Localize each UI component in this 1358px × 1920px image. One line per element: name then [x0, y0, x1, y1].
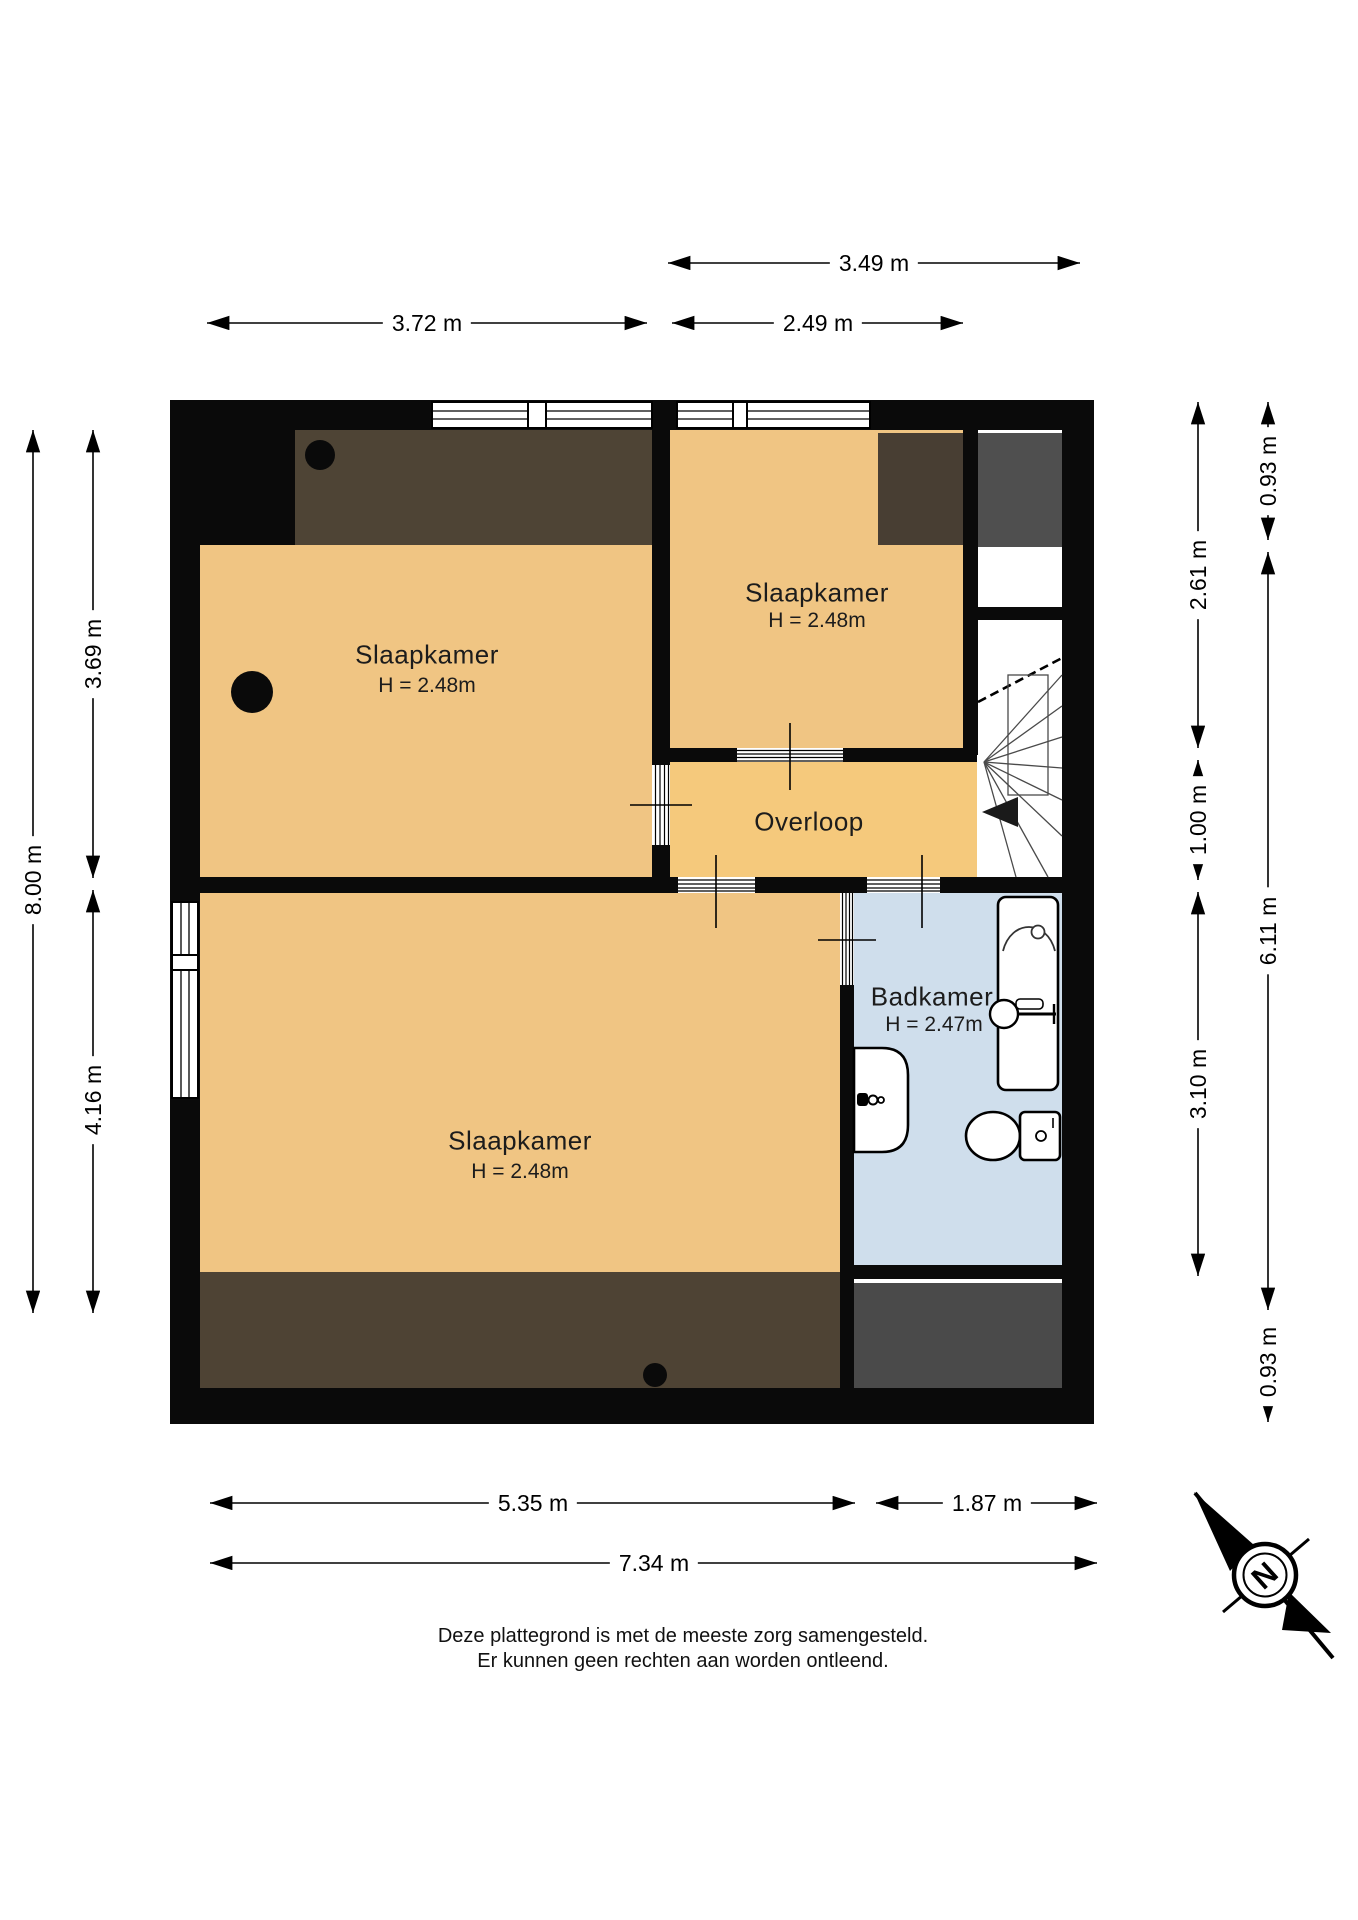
disclaimer-line-2: Er kunnen geen rechten aan worden ontlee… [477, 1650, 888, 1673]
dimension-label: 8.00 m [20, 836, 46, 924]
washbasin [854, 1048, 908, 1152]
dimension-label: 4.16 m [80, 1056, 106, 1144]
wall-stairwell-closet [978, 607, 1062, 620]
room-label-slaapkamer-top-right: Slaapkamer [745, 578, 889, 609]
sloped-zone-bottom-right [854, 1283, 1062, 1388]
room-label-slaapkamer-top-left: Slaapkamer [355, 640, 499, 671]
wall-exterior-bottom [170, 1388, 1094, 1424]
dimension-label: 3.72 m [383, 310, 471, 336]
wall-stairwell-left [963, 430, 978, 755]
wall-bathroom-bottom [854, 1265, 1062, 1279]
sloped-zone-top-right [878, 433, 963, 545]
dimension-label: 3.49 m [830, 250, 918, 276]
wall-exterior-right [1062, 400, 1094, 1424]
room-height-slaapkamer-top-right: H = 2.48m [768, 609, 865, 633]
wall-corner-block [170, 400, 295, 545]
toilet [966, 1112, 1060, 1160]
sloped-zone-bottom-left [200, 1272, 840, 1388]
dimension-label: 3.69 m [80, 610, 106, 698]
ceiling-spot-icon [643, 1363, 667, 1387]
dimension-label: 2.61 m [1185, 531, 1211, 619]
ceiling-spot-icon [231, 671, 273, 713]
room-height-slaapkamer-top-left: H = 2.48m [378, 674, 475, 698]
floor-areas [200, 430, 1062, 1388]
floorplan-canvas: Slaapkamer H = 2.48m Slaapkamer H = 2.48… [0, 0, 1358, 1920]
dimension-label: 2.49 m [774, 310, 862, 336]
window-top-left [432, 402, 652, 428]
bathtub [998, 897, 1058, 1090]
dimension-label: 0.93 m [1255, 1318, 1281, 1406]
ceiling-spot-icon [305, 440, 335, 470]
room-label-badkamer: Badkamer [871, 982, 994, 1013]
dimension-label: 5.35 m [489, 1490, 577, 1516]
room-label-overloop: Overloop [754, 807, 864, 838]
window-left [172, 902, 198, 1098]
dimension-label: 7.34 m [610, 1550, 698, 1576]
dimension-label: 6.11 m [1255, 888, 1281, 975]
room-label-slaapkamer-bottom: Slaapkamer [448, 1126, 592, 1157]
sloped-zone-top-left [295, 430, 652, 545]
dimension-label: 1.00 m [1185, 776, 1211, 864]
window-top-right [677, 402, 870, 428]
room-height-badkamer: H = 2.47m [885, 1013, 982, 1037]
disclaimer-line-1: Deze plattegrond is met de meeste zorg s… [438, 1625, 928, 1648]
room-height-slaapkamer-bottom: H = 2.48m [471, 1160, 568, 1184]
sloped-zone-stairwell [978, 433, 1062, 547]
dimension-label: 0.93 m [1255, 427, 1281, 515]
dimension-label: 3.10 m [1185, 1040, 1211, 1128]
dimension-label: 1.87 m [943, 1490, 1031, 1516]
